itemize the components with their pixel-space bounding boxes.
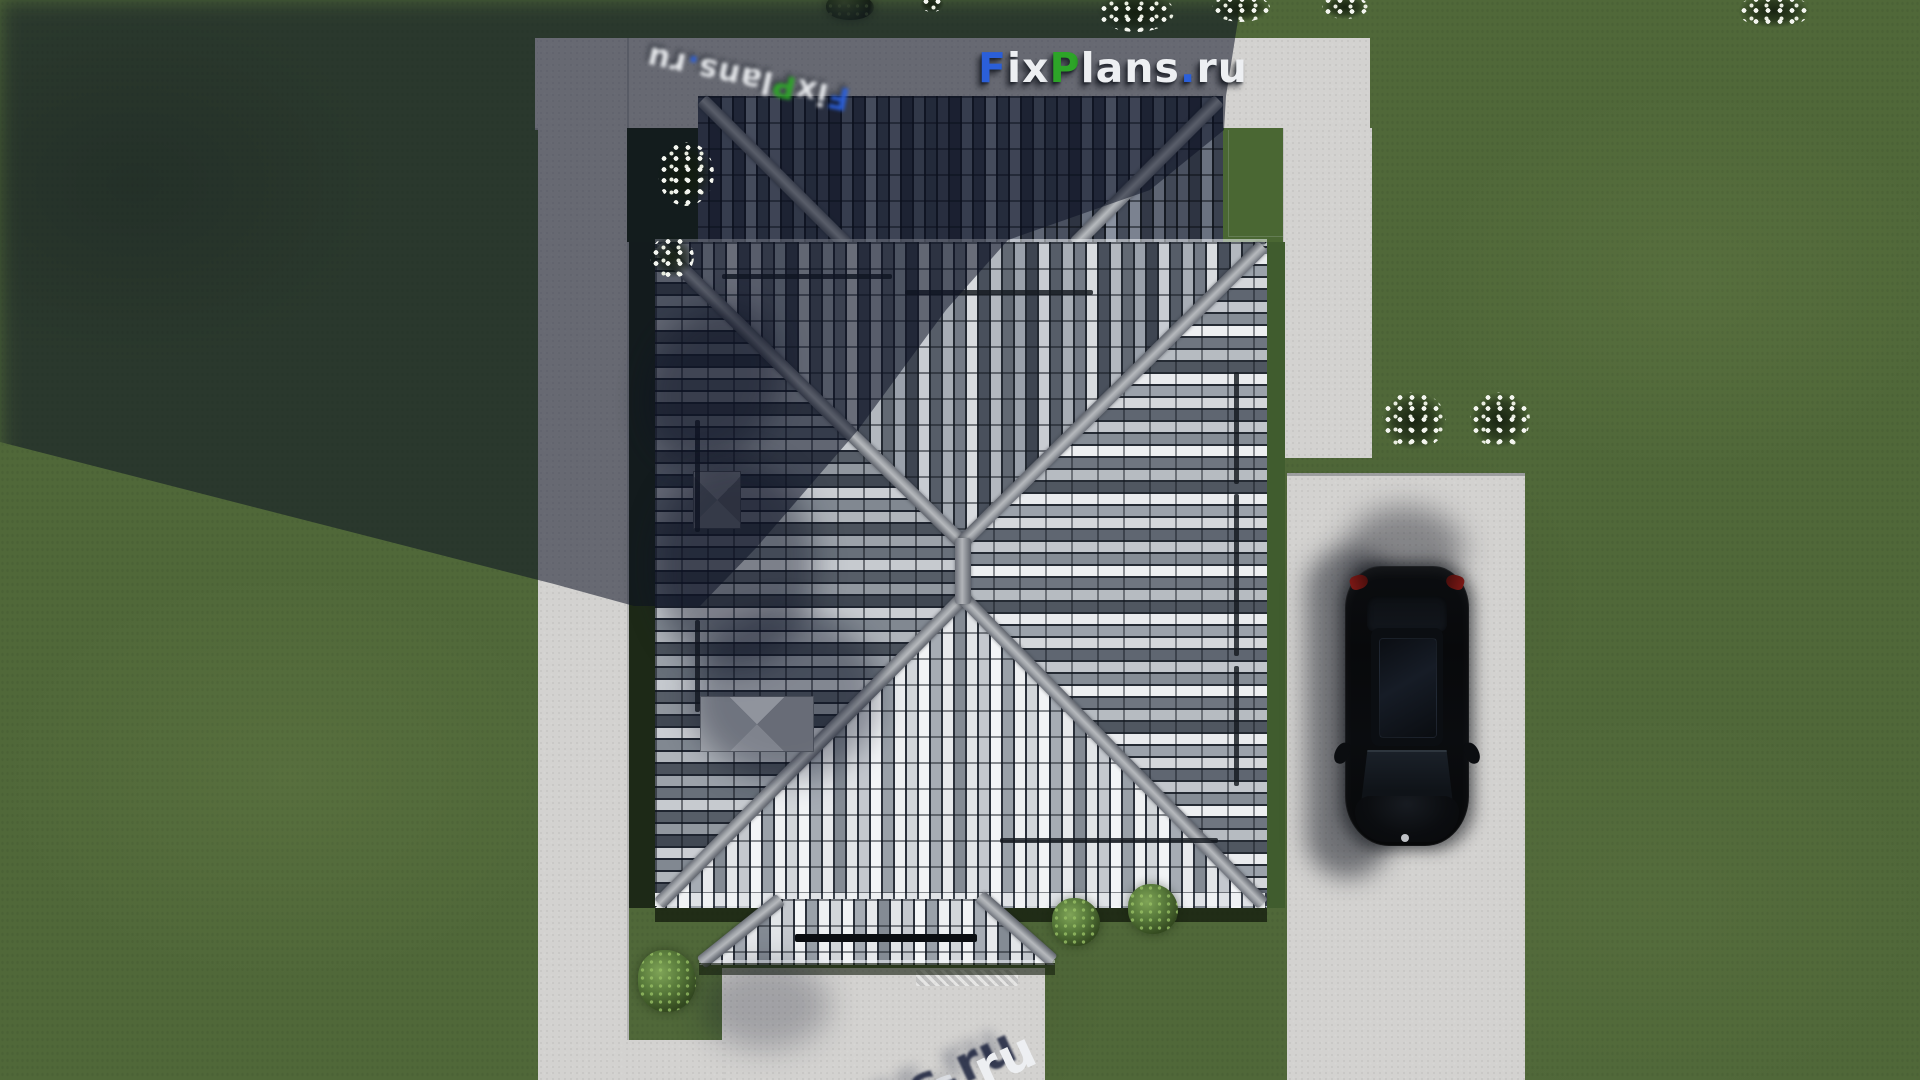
snow-guard xyxy=(695,620,700,712)
bush xyxy=(1128,884,1178,934)
walkway-right xyxy=(1282,128,1372,458)
eave-shadow-bay xyxy=(699,963,1055,975)
snow-guard xyxy=(1234,372,1239,484)
snow-guard xyxy=(1000,838,1218,843)
watermark-logo: FixPlans.ru xyxy=(978,44,1248,92)
flower-cluster xyxy=(1382,392,1446,450)
roof-ridge-middle xyxy=(955,538,971,604)
path-apron xyxy=(624,1040,724,1080)
bush xyxy=(1052,898,1100,946)
bush xyxy=(638,950,696,1012)
survey-line-vertical xyxy=(1228,130,1229,236)
aerial-house-render: FixPlans.ru FixPlans.ru FixPlans.ru xyxy=(0,0,1920,1080)
eave-shadow-left xyxy=(629,242,657,908)
flower-cluster xyxy=(650,236,694,278)
flower-cluster xyxy=(658,142,714,206)
eave-line-top xyxy=(655,239,1267,242)
eave-shadow-right xyxy=(1267,242,1285,908)
chimney xyxy=(693,471,741,529)
snow-guard xyxy=(722,274,892,279)
flower-cluster xyxy=(1470,392,1530,448)
path-left xyxy=(538,38,629,1080)
car-plate-light xyxy=(1401,834,1409,842)
logo-dot: . xyxy=(1180,44,1197,92)
logo-letters-ru: ru xyxy=(1196,44,1247,92)
snow-guard xyxy=(1234,494,1239,656)
snow-guard-bay xyxy=(795,934,977,942)
mirror-letters-ru: ru xyxy=(643,39,689,82)
car-sunroof xyxy=(1379,638,1437,738)
logo-letters-ix: ix xyxy=(1007,44,1050,92)
logo-letter-f: F xyxy=(978,44,1007,92)
car-rear-window xyxy=(1367,596,1447,632)
chimney-large xyxy=(700,696,814,752)
grass-pocket-top-right xyxy=(1222,128,1283,242)
logo-letter-p: P xyxy=(1050,44,1081,92)
snow-guard xyxy=(1234,666,1239,786)
car-roof xyxy=(1371,628,1443,746)
snow-guard xyxy=(905,290,1093,295)
car xyxy=(1345,566,1469,846)
logo-letters-lans: lans xyxy=(1081,44,1180,92)
survey-line-horizontal xyxy=(1228,236,1283,237)
snow-guard xyxy=(695,420,700,532)
